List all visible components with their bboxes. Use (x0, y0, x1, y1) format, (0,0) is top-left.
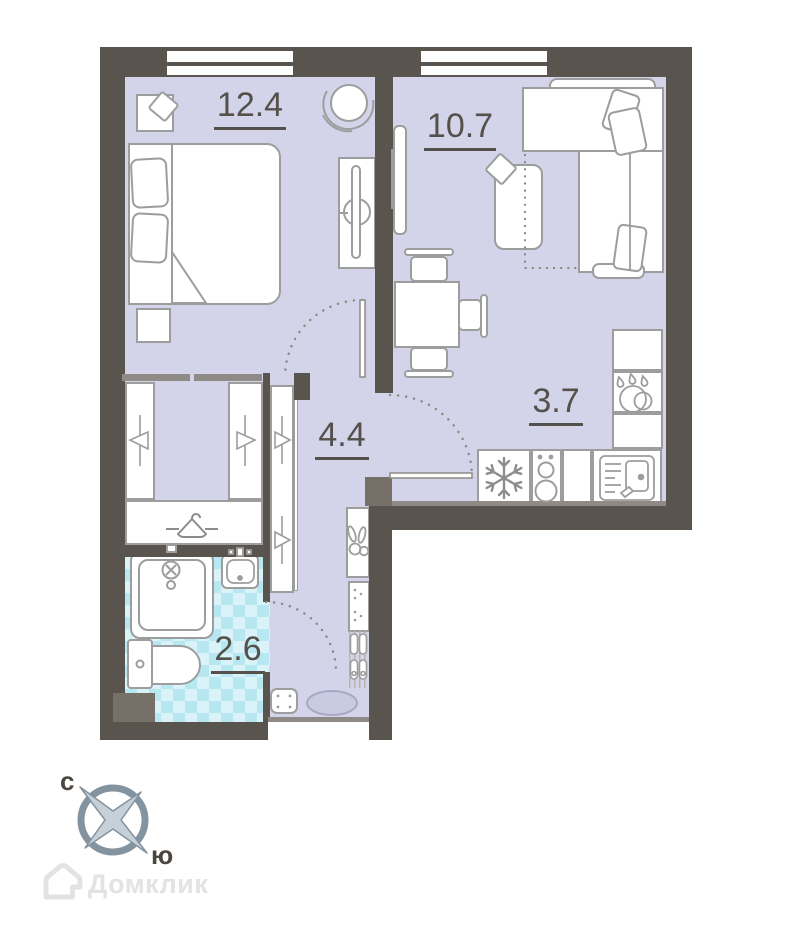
watermark-brand: Домклик (88, 871, 208, 898)
wall-bathroom-top (125, 545, 270, 557)
wall-kitchen-bottom (369, 506, 690, 530)
closet-left (125, 382, 155, 500)
chair-back (480, 294, 488, 338)
compass-north-label: с (60, 768, 74, 794)
wall-bottom (100, 722, 268, 740)
tv-stand-bedroom (338, 157, 376, 269)
fridge (477, 449, 531, 506)
dishwasher (612, 371, 663, 413)
dining-table (394, 281, 460, 348)
chair-seat (410, 347, 448, 371)
stove (531, 449, 562, 506)
pillow (130, 212, 170, 264)
floor-plan: 12.4 10.7 4.4 3.7 2.6 с ю Домклик (0, 0, 792, 928)
compass-icon (80, 787, 147, 853)
room-label-bathroom: 2.6 (206, 632, 270, 666)
closet-track (194, 374, 262, 381)
shoe-bench (348, 581, 370, 632)
entrance-threshold (268, 717, 369, 722)
kitchen-cabinet (612, 329, 663, 371)
pouf (270, 688, 298, 714)
wall-divider-stub (375, 47, 393, 393)
shower (130, 551, 214, 639)
wall-right (666, 47, 692, 530)
rug (306, 690, 358, 716)
room-label-hallway: 4.4 (310, 418, 374, 452)
kitchen-counter (562, 449, 592, 506)
kitchen-sink-unit (592, 449, 662, 506)
wall-kitchen-door-block (365, 477, 392, 506)
wall-left (100, 47, 125, 740)
key-console (346, 507, 370, 578)
hall-closet (270, 385, 294, 593)
bath-sink (221, 554, 259, 589)
kitchen-cabinet (612, 413, 663, 449)
shoe-rack (349, 631, 370, 688)
window-living (421, 51, 547, 62)
window-bedroom (167, 66, 293, 75)
window-bedroom (167, 51, 293, 62)
wall-corridor-west-upper (263, 373, 270, 602)
chair-back (404, 248, 454, 256)
sofa-pillow (612, 223, 648, 273)
closet-right (228, 382, 263, 500)
wall-corridor-west-lower (263, 672, 270, 722)
vent-shaft (113, 693, 155, 722)
chair-seat (458, 299, 482, 331)
window-living (421, 66, 547, 75)
house-logo-icon (46, 866, 80, 898)
wall-hall-right (369, 506, 392, 740)
room-label-living: 10.7 (420, 109, 500, 143)
wardrobe-cabinet (125, 500, 263, 545)
pillow (130, 157, 170, 209)
nightstand (136, 308, 171, 343)
room-label-bedroom: 12.4 (210, 88, 290, 122)
hall-closet-doors (294, 387, 298, 591)
chair-seat (410, 256, 448, 282)
room-label-kitchen: 3.7 (524, 384, 588, 418)
chair-back (404, 370, 454, 378)
wall-bedroom-door-pillar (294, 373, 310, 400)
closet-track (122, 374, 190, 381)
compass-south-label: ю (151, 842, 173, 868)
